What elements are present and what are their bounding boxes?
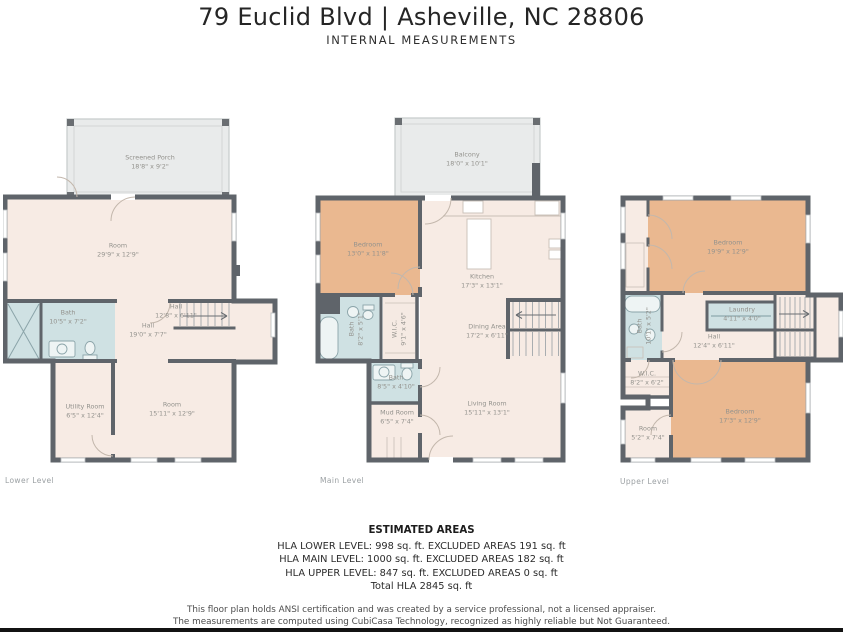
lower-level-caption: Lower Level bbox=[5, 476, 54, 485]
room-label-mud-room: Mud Room6'5" x 7'4" bbox=[380, 409, 414, 428]
main-level-caption: Main Level bbox=[320, 476, 364, 485]
disclaimer: This floor plan holds ANSI certification… bbox=[0, 604, 843, 628]
room-label-living-room: Living Room15'11" x 13'1" bbox=[464, 400, 510, 419]
estimated-areas-title: ESTIMATED AREAS bbox=[0, 524, 843, 538]
main-level-floorplan bbox=[313, 115, 568, 490]
room-label-room: Room5'2" x 7'4" bbox=[631, 425, 665, 444]
room-label-bedroom-1: Bedroom19'9" x 12'9" bbox=[707, 239, 749, 258]
hla-upper-line: HLA UPPER LEVEL: 847 sq. ft. EXCLUDED AR… bbox=[0, 567, 843, 581]
room-label-hall: Hall12'4" x 6'11" bbox=[693, 333, 735, 352]
room-label-wic: W.I.C.8'2" x 6'2" bbox=[630, 370, 664, 389]
room-label-screened-porch: Screened Porch18'8" x 9'2" bbox=[125, 154, 175, 173]
hla-total-line: Total HLA 2845 sq. ft bbox=[0, 580, 843, 594]
room-label-bath-rotated: Bath10'1" x 5'2" bbox=[636, 307, 655, 345]
page-title: 79 Euclid Blvd | Asheville, NC 28806 bbox=[0, 3, 843, 31]
floor-plan-page: 79 Euclid Blvd | Asheville, NC 28806 INT… bbox=[0, 0, 843, 632]
room-label-dining-area: Dining Area17'2" x 6'11" bbox=[466, 323, 508, 342]
room-label-hall-stairs: Hall12'8" x 6'11" bbox=[155, 303, 197, 322]
disclaimer-line-2: The measurements are computed using Cubi… bbox=[0, 616, 843, 628]
upper-level-caption: Upper Level bbox=[620, 477, 669, 486]
room-label-bedroom-2: Bedroom17'3" x 12'9" bbox=[719, 408, 761, 427]
disclaimer-line-1: This floor plan holds ANSI certification… bbox=[0, 604, 843, 616]
main-level-plan: Balcony18'0" x 10'1" Bedroom13'0" x 11'8… bbox=[313, 115, 568, 490]
room-label-balcony: Balcony18'0" x 10'1" bbox=[446, 151, 488, 170]
room-label-room: Room29'9" x 12'9" bbox=[97, 242, 139, 261]
lower-level-plan: Screened Porch18'8" x 9'2" Room29'9" x 1… bbox=[3, 115, 281, 490]
room-label-utility-room: Utility Room6'5" x 12'4" bbox=[65, 403, 104, 422]
room-label-wic-rotated: W.I.C.9'1" x 4'6" bbox=[391, 312, 410, 346]
room-label-room-2: Room15'11" x 12'9" bbox=[149, 401, 195, 420]
room-label-kitchen: Kitchen17'3" x 13'1" bbox=[461, 273, 503, 292]
room-label-bedroom: Bedroom13'0" x 11'8" bbox=[347, 241, 389, 260]
page-subtitle: INTERNAL MEASUREMENTS bbox=[0, 33, 843, 47]
room-label-bath-rotated: Bath8'2" x 5'1" bbox=[348, 312, 367, 346]
room-label-laundry: Laundry4'11" x 4'0" bbox=[723, 306, 761, 325]
room-label-bath-2: Bath8'5" x 4'10" bbox=[377, 374, 415, 393]
bottom-border-bar bbox=[0, 628, 843, 632]
hla-main-line: HLA MAIN LEVEL: 1000 sq. ft. EXCLUDED AR… bbox=[0, 553, 843, 567]
room-label-hall: Hall19'0" x 7'7" bbox=[129, 322, 167, 341]
estimated-areas: ESTIMATED AREAS HLA LOWER LEVEL: 998 sq.… bbox=[0, 524, 843, 594]
upper-level-plan: Bedroom19'9" x 12'9" Bath10'1" x 5'2" La… bbox=[603, 115, 843, 490]
hla-lower-line: HLA LOWER LEVEL: 998 sq. ft. EXCLUDED AR… bbox=[0, 540, 843, 554]
room-label-bath: Bath10'5" x 7'2" bbox=[49, 309, 87, 328]
